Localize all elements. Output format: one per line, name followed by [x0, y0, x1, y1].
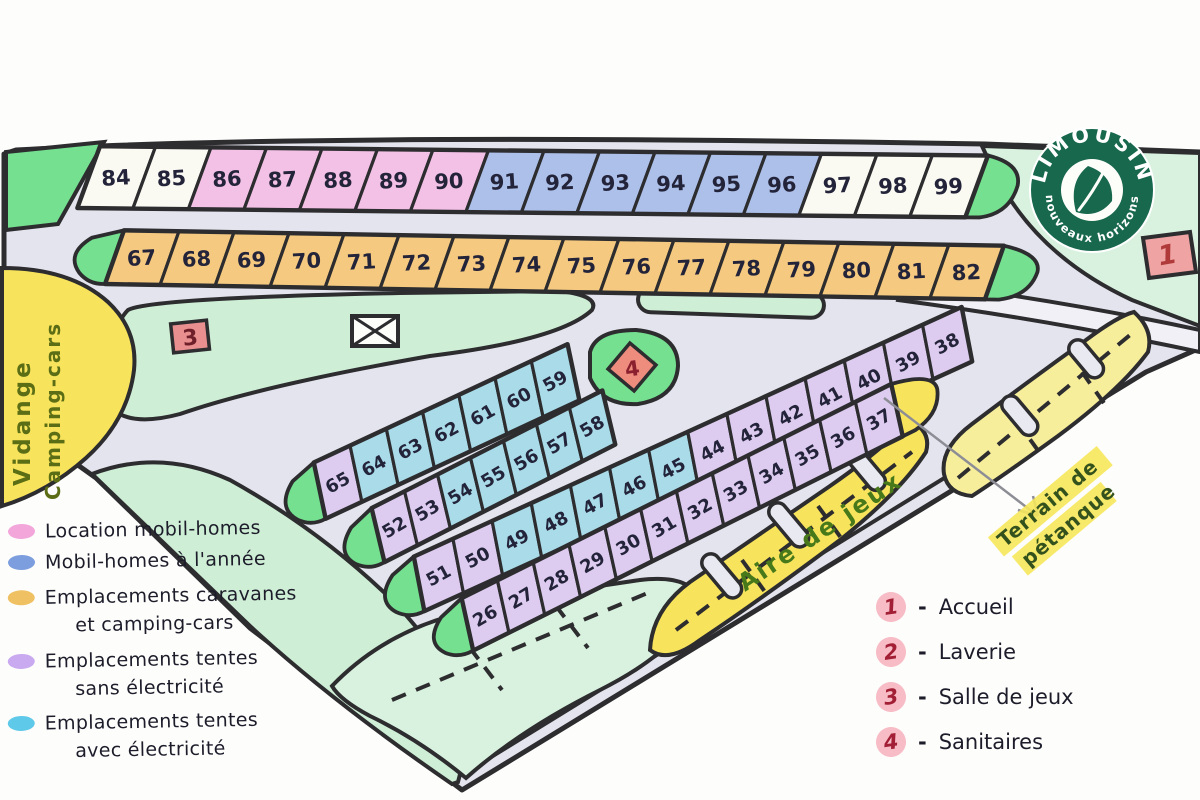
pitch-number: 89	[378, 168, 409, 194]
pitch-number: 98	[878, 173, 909, 199]
pitch-number: 75	[566, 253, 596, 278]
pitch-number: 88	[323, 167, 354, 193]
marker-salle-number: 3	[181, 325, 199, 351]
vidange-label-line1: Vidange	[10, 359, 36, 486]
pitch-number: 68	[181, 246, 211, 271]
pitch-number: 74	[511, 252, 541, 277]
pitch-number: 77	[676, 255, 706, 280]
laverie-crossed-box-icon	[352, 316, 398, 346]
pitch-number: 72	[401, 250, 431, 275]
pitch-number: 82	[951, 260, 981, 285]
pitch-number: 67	[126, 245, 156, 270]
pitch-number: 99	[933, 174, 964, 200]
pitch-number: 71	[346, 249, 376, 274]
pitch-number: 84	[101, 165, 132, 191]
pitch-number: 92	[545, 170, 576, 196]
pitch-number: 79	[786, 257, 816, 282]
pitch-number: 85	[156, 166, 187, 192]
pitch-number: 91	[489, 169, 520, 195]
pitch-strip-row1: 84858687888990919293949596979899	[77, 146, 1018, 218]
pitch-number: 93	[600, 170, 631, 196]
pitch-number: 95	[711, 172, 742, 198]
campsite-map-page: Vidange Camping-cars 8485868788899091929…	[0, 0, 1200, 800]
pitch-number: 73	[456, 251, 486, 276]
campsite-map: Vidange Camping-cars 8485868788899091929…	[0, 0, 1200, 800]
pitch-number: 69	[236, 247, 266, 272]
pitch-number: 81	[896, 259, 926, 284]
pitch-number: 90	[434, 169, 465, 195]
pitch-number: 86	[212, 166, 243, 192]
pitch-number: 78	[731, 256, 761, 281]
pitch-number: 97	[822, 173, 853, 199]
pitch-number: 96	[767, 172, 798, 198]
pitch-number: 76	[621, 254, 651, 279]
pitch-number: 80	[841, 258, 871, 283]
pitch-number: 70	[291, 248, 321, 273]
vidange-label-line2: Camping-cars	[41, 322, 65, 500]
limousin-logo: LIMOUSIN nouveaux horizons	[1026, 122, 1158, 252]
marker-salle-de-jeux: 3	[171, 320, 210, 353]
pitch-number: 94	[656, 171, 687, 197]
marker-accueil: 1	[1143, 232, 1196, 278]
pitch-number: 87	[267, 167, 298, 193]
